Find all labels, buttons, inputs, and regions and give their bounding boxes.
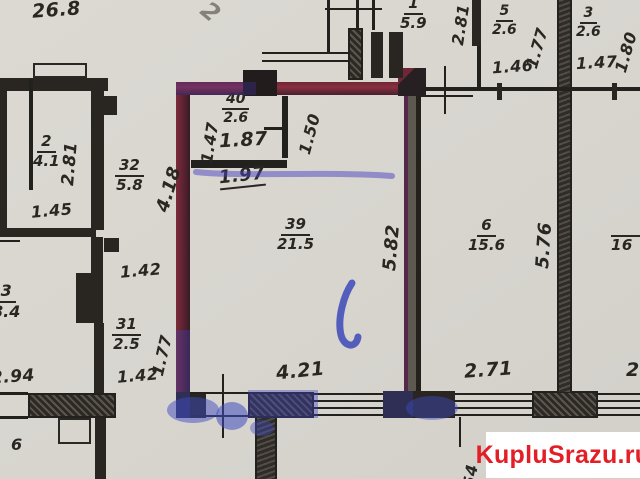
dim-1-47-top: 1.47: [576, 54, 618, 72]
floor-plan-photo: 26.8 2 2 4.1 2.81 1.45 3 8.4 2.94 6 1.42…: [0, 0, 640, 479]
dimension-line: [459, 417, 461, 447]
dim-4-21: 4.21: [275, 359, 326, 383]
wall-segment: [472, 0, 481, 46]
room-area: 2.5: [113, 336, 140, 353]
room-area: 15.6: [468, 237, 505, 254]
dimension-tick: [222, 374, 224, 438]
wall-segment: [372, 0, 375, 30]
window-glazing-line: [455, 400, 532, 402]
vent-shaft-outline: [33, 63, 87, 78]
window-symbol: [532, 391, 598, 418]
balcony-outline: [58, 418, 91, 444]
dim-6: 6: [11, 437, 23, 453]
wall-segment: [95, 418, 106, 479]
wall-segment: [255, 418, 277, 479]
window-glazing-line: [455, 414, 532, 416]
room-label-31: 31 2.5: [112, 317, 141, 353]
dim-1-47-small: 1.47: [199, 121, 221, 164]
dimension-tick: [444, 66, 446, 114]
room-label-32: 32 5.8: [115, 158, 144, 194]
dimension-line: [325, 8, 382, 10]
wall-segment: [371, 32, 383, 78]
room-label-3-top: 3 2.6: [576, 6, 601, 39]
watermark: KupluSrazu.ru: [486, 432, 640, 478]
dim-5-82: 5.82: [381, 224, 403, 272]
room-area: 5.9: [400, 15, 427, 32]
room-label-2: 2 4.1: [33, 134, 60, 170]
dim-1-50: 1.50: [297, 112, 323, 156]
wall-segment: [477, 46, 481, 90]
dim-1-97: 1.97: [218, 165, 266, 191]
wall-segment: [421, 95, 473, 97]
duct-block: [348, 28, 363, 80]
pencil-mark: 2: [196, 0, 225, 27]
room-number: 31: [112, 317, 141, 336]
wall-segment: [91, 78, 104, 230]
window-sill-line: [190, 392, 248, 394]
watermark-text: KupluSrazu.ru: [476, 441, 640, 470]
room-label-3-left: 3 8.4: [0, 283, 20, 321]
room-area: 8.4: [0, 303, 20, 321]
dim-1-45: 1.45: [30, 201, 73, 221]
dim-26-8: 26.8: [31, 0, 81, 22]
window-glazing-line: [314, 407, 383, 409]
wall-segment: [104, 96, 117, 115]
room-label-39: 39 21.5: [277, 217, 314, 253]
room-number: 3: [580, 6, 598, 24]
room-number: 2: [37, 134, 55, 153]
window-glazing-line: [598, 393, 640, 395]
wall-segment: [94, 323, 104, 395]
room-number: 32: [115, 158, 144, 177]
window-sill-line: [0, 416, 28, 419]
dim-2-81-left: 2.81: [60, 141, 81, 186]
window-glazing-line: [455, 393, 532, 395]
dim-2-81-top: 2.81: [450, 3, 472, 46]
dim-1-42-lower: 1.42: [116, 366, 159, 386]
room-label-40: 40 2.6: [222, 92, 249, 125]
dim-2-94: 2.94: [0, 367, 35, 387]
window-symbol: [28, 393, 116, 418]
pen-hook-mark: [340, 283, 358, 345]
wall-segment: [91, 237, 103, 275]
room-area: 21.5: [277, 236, 314, 253]
dim-1-42-upper: 1.42: [119, 261, 162, 281]
dimension-line: [0, 240, 20, 242]
wall-segment: [76, 273, 103, 323]
window-glazing-line: [598, 400, 640, 402]
room-area: 2.6: [223, 110, 248, 126]
room-area: 4.1: [33, 153, 60, 170]
window-sill-line: [190, 415, 248, 417]
door-stub: [612, 83, 617, 100]
balcony-line: [262, 60, 348, 62]
wall-segment: [0, 228, 96, 237]
window-sill-line: [0, 392, 28, 395]
window-glazing-line: [598, 414, 640, 416]
room-number: 6: [477, 218, 495, 237]
room-number: 1: [404, 0, 422, 15]
door-stub: [497, 83, 502, 100]
apartment-left-wall-marked: [176, 84, 190, 400]
room-number: 40: [222, 92, 249, 110]
room-area: 5.8: [116, 177, 143, 194]
balcony-line: [262, 52, 348, 54]
room40-right-wall: [282, 96, 288, 158]
wall-segment: [356, 0, 359, 30]
window-glazing-line: [598, 407, 640, 409]
room-area: 2.6: [492, 22, 517, 38]
window-glazing-line: [314, 414, 383, 416]
window-glazing-line: [314, 400, 383, 402]
dim-1-46: 1.46: [491, 58, 533, 77]
window-symbol: [248, 392, 314, 418]
wall-segment: [421, 87, 640, 91]
apartment-right-wall-marked: [404, 96, 421, 400]
room-number: 3: [0, 283, 16, 303]
dim-cut-right: 2.: [626, 361, 640, 380]
room-label-6: 6 15.6: [468, 218, 505, 254]
wall-segment: [389, 32, 403, 78]
room-label-5: 5 2.6: [492, 4, 517, 37]
wall-segment: [0, 80, 7, 232]
room-label-1: 1 5.9: [400, 0, 427, 32]
party-wall: [557, 0, 572, 392]
wall-segment: [104, 238, 119, 252]
room-number: 39: [281, 217, 310, 236]
wall-pier: [383, 391, 455, 418]
room-number: 5: [496, 4, 514, 22]
room-label-cut-right: 16: [611, 235, 640, 253]
room-area: 2.6: [576, 24, 601, 40]
dim-2-71: 2.71: [463, 359, 513, 381]
dim-5-76: 5.76: [534, 222, 555, 270]
dim-1-87: 1.87: [219, 130, 269, 152]
window-glazing-line: [455, 407, 532, 409]
window-glazing-line: [314, 393, 383, 395]
